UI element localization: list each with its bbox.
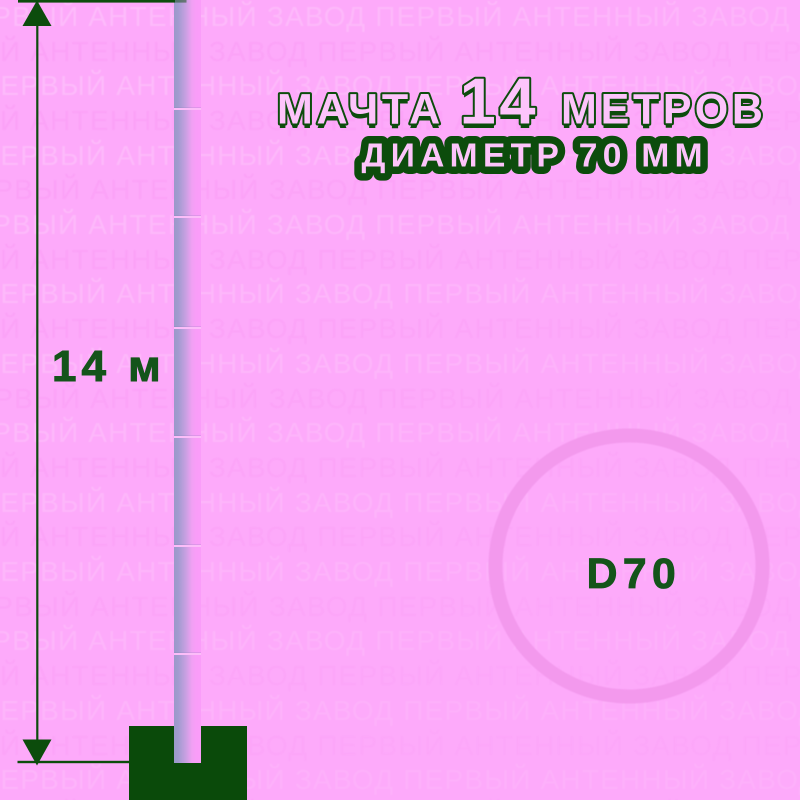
svg-text:D70: D70 [587, 550, 681, 598]
svg-text:14 м: 14 м [52, 342, 166, 391]
svg-text:МАЧТА 14 МЕТРОВ: МАЧТА 14 МЕТРОВ [277, 65, 767, 138]
svg-text:ДИАМЕТР 70 ММ: ДИАМЕТР 70 ММ [362, 138, 708, 175]
